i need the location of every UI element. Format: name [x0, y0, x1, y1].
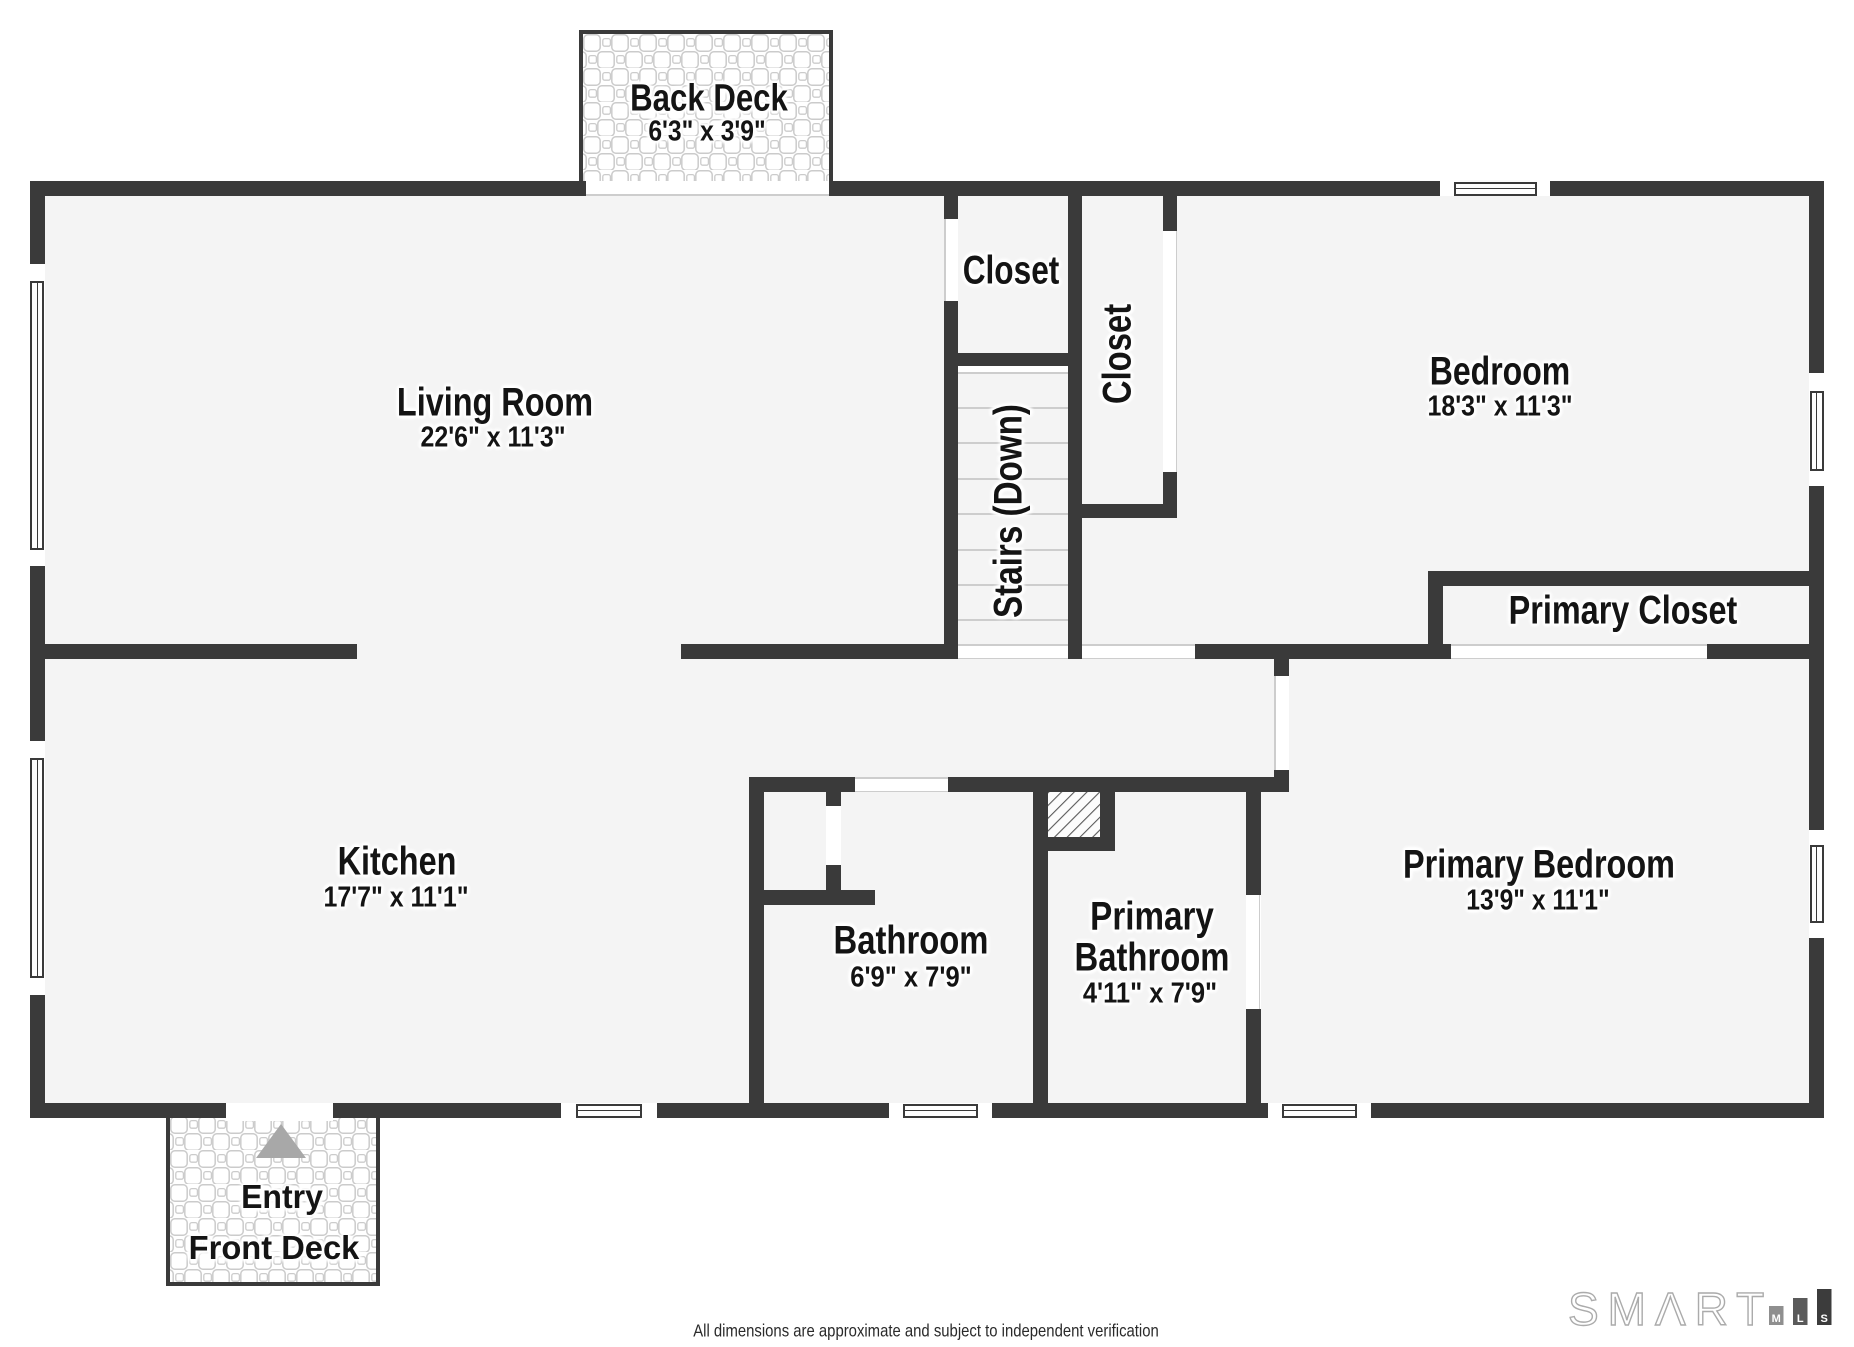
- svg-text:M: M: [1772, 1313, 1781, 1325]
- svg-text:S: S: [1821, 1313, 1828, 1325]
- svg-text:SMΛRT: SMΛRT: [1568, 1283, 1773, 1335]
- svg-text:L: L: [1797, 1313, 1804, 1325]
